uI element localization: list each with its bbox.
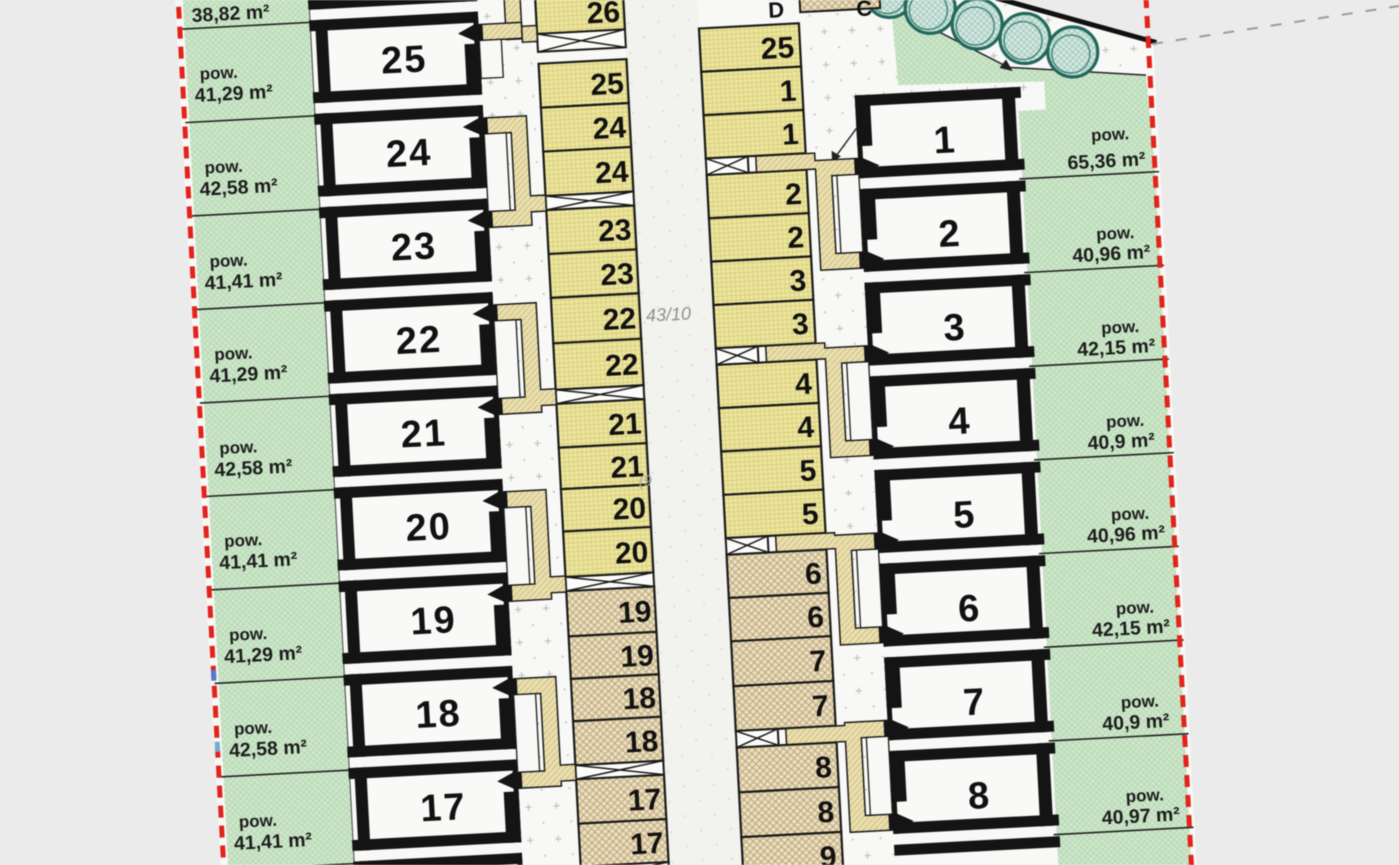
svg-text:pow.: pow. xyxy=(234,718,273,739)
svg-text:pow.: pow. xyxy=(1125,785,1164,806)
svg-text:21: 21 xyxy=(400,412,448,456)
svg-text:5: 5 xyxy=(952,494,977,537)
svg-text:40,97 m²: 40,97 m² xyxy=(1101,803,1181,829)
svg-text:8: 8 xyxy=(967,775,992,818)
svg-text:42,58 m²: 42,58 m² xyxy=(199,175,279,201)
svg-text:19: 19 xyxy=(617,595,652,630)
svg-text:18: 18 xyxy=(624,725,659,760)
svg-text:22: 22 xyxy=(602,302,637,337)
svg-text:41,29 m²: 41,29 m² xyxy=(194,81,274,107)
svg-text:41,41 m²: 41,41 m² xyxy=(204,269,284,295)
svg-text:18: 18 xyxy=(414,693,462,737)
svg-text:42,58 m²: 42,58 m² xyxy=(214,455,294,481)
svg-text:1: 1 xyxy=(933,119,958,162)
svg-text:6: 6 xyxy=(957,588,982,631)
svg-text:8: 8 xyxy=(817,796,835,830)
svg-text:pow.: pow. xyxy=(1091,124,1130,145)
svg-text:17: 17 xyxy=(627,783,662,818)
svg-text:5: 5 xyxy=(801,498,819,532)
svg-text:40,9 m²: 40,9 m² xyxy=(1087,429,1156,455)
svg-text:7: 7 xyxy=(811,690,829,724)
svg-text:pow.: pow. xyxy=(238,811,277,832)
svg-text:25: 25 xyxy=(380,38,428,82)
svg-text:26: 26 xyxy=(586,0,621,30)
svg-text:20: 20 xyxy=(614,536,649,571)
svg-text:pow.: pow. xyxy=(1115,597,1154,618)
svg-text:40,9 m²: 40,9 m² xyxy=(1102,710,1171,736)
svg-text:21: 21 xyxy=(607,407,642,442)
svg-text:C: C xyxy=(856,0,873,21)
svg-text:pow.: pow. xyxy=(199,63,238,84)
svg-text:41,29 m²: 41,29 m² xyxy=(209,361,289,387)
svg-text:4: 4 xyxy=(947,400,972,443)
svg-text:20: 20 xyxy=(405,506,453,550)
svg-text:41,41 m²: 41,41 m² xyxy=(219,548,299,574)
svg-text:9: 9 xyxy=(819,841,837,865)
svg-text:pow.: pow. xyxy=(209,250,248,271)
svg-text:42,15 m²: 42,15 m² xyxy=(1091,616,1171,642)
svg-text:pow.: pow. xyxy=(1110,504,1149,525)
svg-text:42,58 m²: 42,58 m² xyxy=(229,736,309,762)
svg-text:pow.: pow. xyxy=(204,157,243,178)
svg-text:(9: (9 xyxy=(638,473,653,491)
svg-text:40,96 m²: 40,96 m² xyxy=(1087,522,1167,548)
svg-text:4: 4 xyxy=(796,411,815,445)
svg-text:2: 2 xyxy=(937,213,962,256)
svg-text:6: 6 xyxy=(804,557,822,591)
svg-text:18: 18 xyxy=(622,682,657,717)
svg-text:19: 19 xyxy=(620,639,655,674)
svg-text:7: 7 xyxy=(962,681,987,724)
svg-text:25: 25 xyxy=(760,31,795,66)
svg-text:42,15 m²: 42,15 m² xyxy=(1077,335,1157,361)
svg-text:23: 23 xyxy=(390,225,438,269)
svg-text:23: 23 xyxy=(600,258,635,293)
svg-text:19: 19 xyxy=(409,599,457,643)
svg-text:8: 8 xyxy=(814,751,832,785)
svg-text:2: 2 xyxy=(787,221,805,255)
svg-text:65,36 m²: 65,36 m² xyxy=(1067,148,1147,174)
svg-text:pow.: pow. xyxy=(1106,411,1145,432)
svg-text:38,82 m²: 38,82 m² xyxy=(191,1,271,27)
svg-text:22: 22 xyxy=(395,319,443,363)
svg-text:3: 3 xyxy=(791,308,809,342)
svg-text:24: 24 xyxy=(385,132,433,176)
svg-text:pow.: pow. xyxy=(224,530,263,551)
svg-text:3: 3 xyxy=(942,307,967,350)
svg-text:pow.: pow. xyxy=(219,437,258,458)
svg-text:24: 24 xyxy=(594,156,629,191)
svg-text:6: 6 xyxy=(806,601,824,635)
svg-text:7: 7 xyxy=(809,645,827,679)
svg-text:1: 1 xyxy=(779,75,797,109)
svg-text:3: 3 xyxy=(789,264,807,298)
svg-text:4: 4 xyxy=(794,368,813,402)
svg-text:pow.: pow. xyxy=(1120,691,1159,712)
svg-text:24: 24 xyxy=(592,111,627,146)
svg-text:pow.: pow. xyxy=(1096,223,1135,244)
svg-text:41,29 m²: 41,29 m² xyxy=(224,642,304,668)
svg-text:2: 2 xyxy=(784,178,802,212)
svg-text:17: 17 xyxy=(419,786,467,830)
svg-text:17: 17 xyxy=(629,827,664,862)
svg-text:41,41 m²: 41,41 m² xyxy=(233,829,313,855)
svg-text:D: D xyxy=(768,0,785,23)
svg-text:40,96 m²: 40,96 m² xyxy=(1072,241,1152,267)
svg-text:22: 22 xyxy=(604,348,639,383)
svg-text:25: 25 xyxy=(590,67,625,102)
svg-text:pow.: pow. xyxy=(1101,317,1140,338)
svg-text:5: 5 xyxy=(799,454,817,488)
svg-text:23: 23 xyxy=(597,214,632,249)
svg-text:pow.: pow. xyxy=(229,624,268,645)
svg-text:1: 1 xyxy=(781,118,799,152)
svg-text:20: 20 xyxy=(612,492,647,527)
svg-text:43/10: 43/10 xyxy=(645,303,691,325)
svg-text:pow.: pow. xyxy=(214,343,253,364)
